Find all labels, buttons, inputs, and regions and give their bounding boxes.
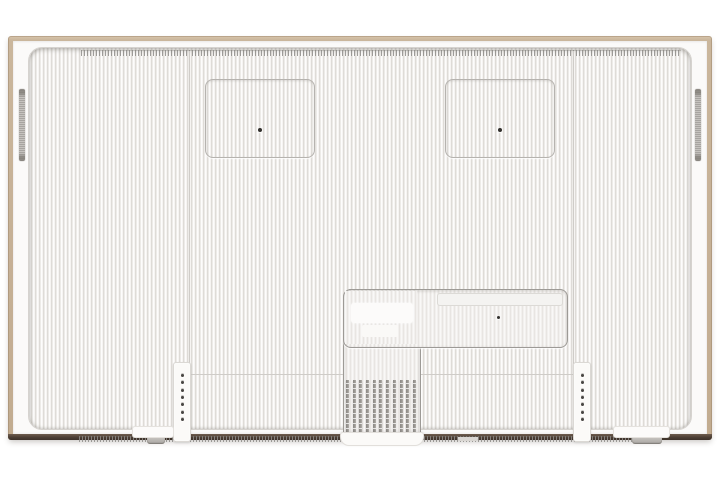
- screw-hole: [498, 128, 502, 132]
- fin: [373, 380, 376, 438]
- mount-tab-left: [132, 426, 174, 438]
- mount-tab-right: [613, 426, 670, 438]
- screw-hole: [181, 374, 184, 377]
- foot-right: [632, 438, 662, 444]
- fin: [366, 380, 369, 438]
- fin: [393, 380, 396, 438]
- fin: [386, 380, 389, 438]
- fin: [353, 380, 356, 438]
- foot-left: [147, 438, 165, 444]
- io-inner-tray: [437, 293, 563, 306]
- panel-seam-left: [189, 51, 190, 364]
- speaker-grille-left: [19, 89, 25, 161]
- screw-hole: [581, 403, 584, 406]
- back-cover: [28, 47, 692, 430]
- screw-hole: [258, 128, 262, 132]
- screw-hole: [581, 411, 584, 414]
- cable-guide-fins: [346, 380, 416, 438]
- center-tab: [458, 437, 478, 441]
- screw-hole: [181, 403, 184, 406]
- screw-hole: [181, 396, 184, 399]
- tv-back-panel: [8, 36, 712, 440]
- screw-hole: [181, 418, 184, 421]
- speaker-grille-right: [695, 89, 701, 161]
- vesa-mount-recess-left: [205, 79, 315, 158]
- fin: [359, 380, 362, 438]
- bracket-rail-left: [173, 362, 191, 442]
- screw-hole: [181, 381, 184, 384]
- screw-hole: [581, 396, 584, 399]
- fin: [406, 380, 409, 438]
- screw-hole: [181, 411, 184, 414]
- panel-seam-horizontal-right: [419, 374, 573, 375]
- panel-seam-horizontal-left: [189, 374, 343, 375]
- fin: [400, 380, 403, 438]
- stand-column-base: [340, 432, 424, 446]
- product-label: [351, 303, 413, 323]
- top-vent-grille: [81, 50, 681, 56]
- fin: [346, 380, 349, 438]
- vesa-mount-recess-right: [445, 79, 555, 158]
- fin: [379, 380, 382, 438]
- bracket-rail-right: [573, 362, 591, 442]
- screw-hole: [181, 389, 184, 392]
- screw-hole: [581, 418, 584, 421]
- screw-hole: [581, 374, 584, 377]
- io-screw-hole: [497, 316, 500, 319]
- screw-hole: [581, 389, 584, 392]
- fin: [413, 380, 416, 438]
- regulatory-label: [362, 325, 398, 337]
- screw-hole: [581, 381, 584, 384]
- product-photo-canvas: { "meta": { "description": "Rear view of…: [0, 0, 720, 480]
- panel-seam-right: [573, 51, 574, 364]
